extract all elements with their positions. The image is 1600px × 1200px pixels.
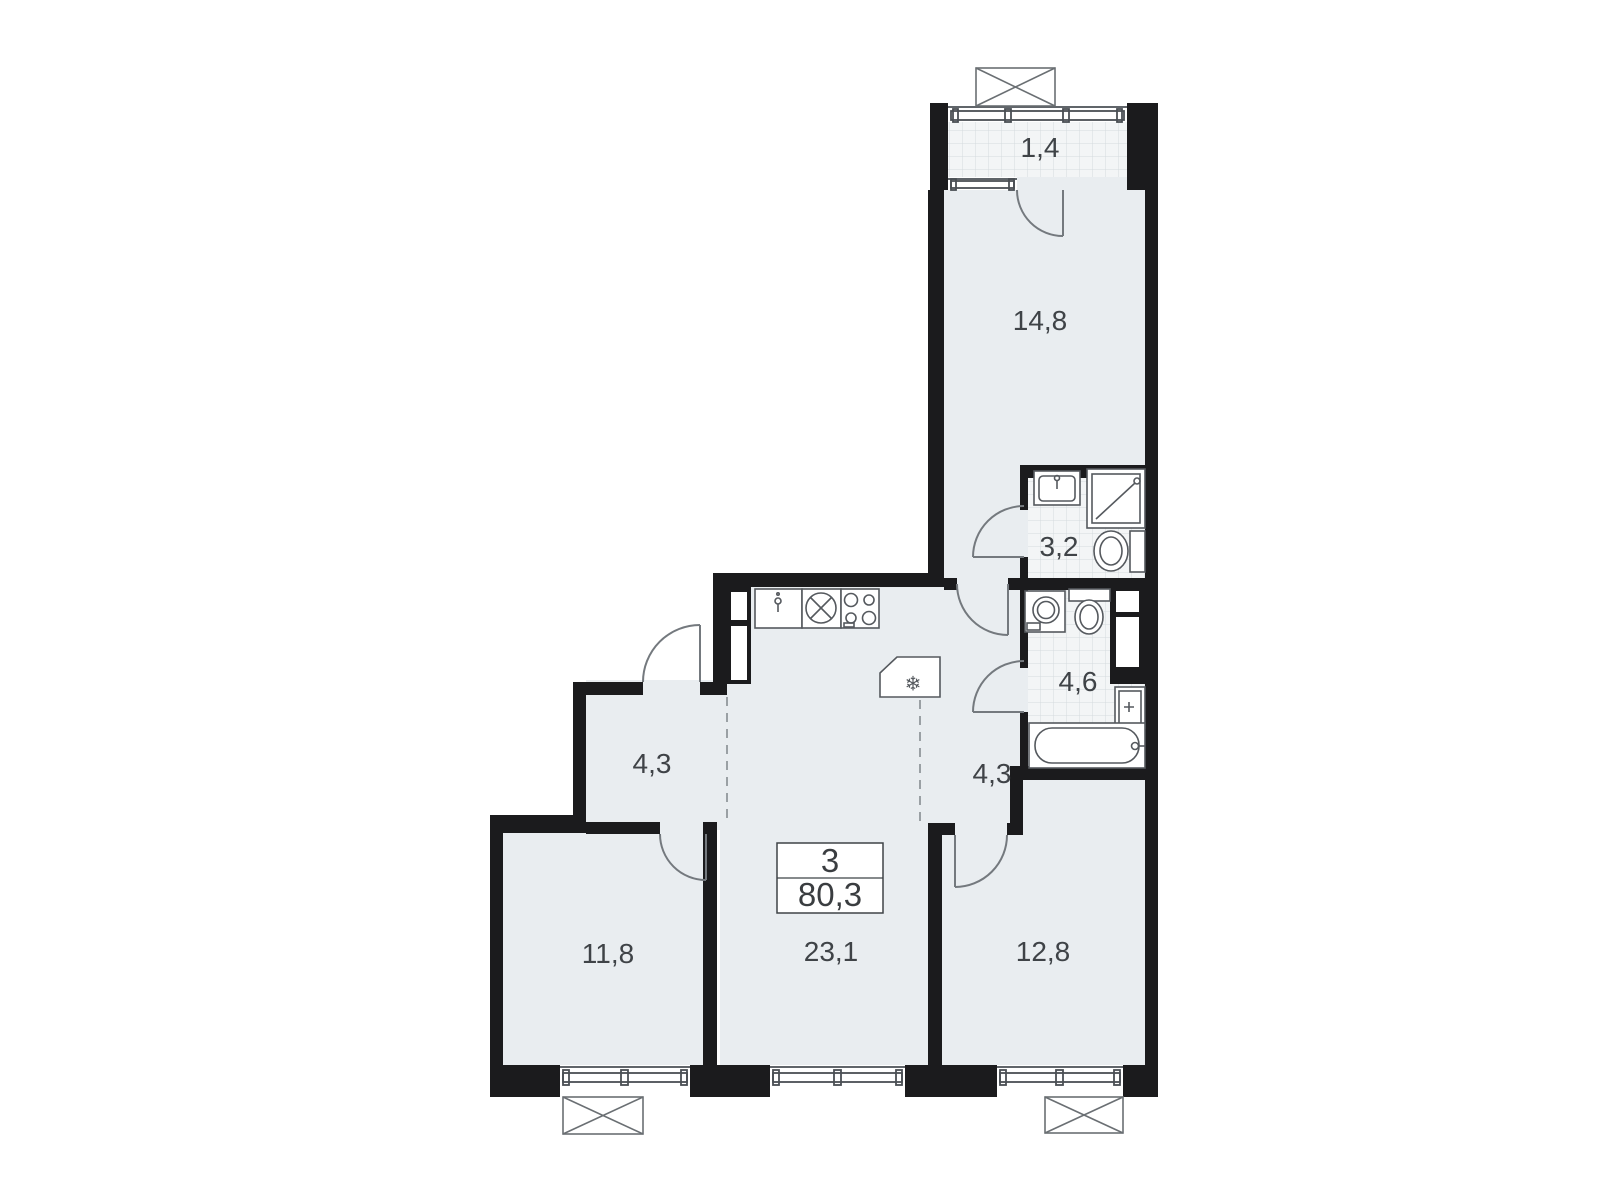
snowflake-icon: ❄ xyxy=(905,673,922,695)
wall xyxy=(905,1065,997,1097)
window-bedroom-right xyxy=(997,1065,1123,1097)
window-kitchen-living xyxy=(770,1065,905,1097)
wall xyxy=(490,815,503,1097)
floor-plan-svg: ❄ 3 80,3 1,4 14,8 3,2 4,6 4,3 4,3 11,8 2… xyxy=(0,0,1600,1200)
wall xyxy=(573,682,643,695)
room-label-balcony: 1,4 xyxy=(1021,132,1060,163)
room-label-kitchen-living: 23,1 xyxy=(804,936,859,967)
wall xyxy=(1010,766,1023,835)
balcony-glazing xyxy=(948,106,1127,122)
room-label-bathroom-shower: 3,2 xyxy=(1040,531,1079,562)
window-bedroom-top xyxy=(948,177,1017,190)
room-label-bathroom-main: 4,6 xyxy=(1059,666,1098,697)
summary-box: 3 80,3 xyxy=(777,842,883,913)
door-entrance xyxy=(643,625,700,682)
wall xyxy=(1123,1065,1158,1097)
basket-marker-bottom-right xyxy=(1045,1097,1123,1133)
room-label-hallway-right: 4,3 xyxy=(973,758,1012,789)
balcony-basket-marker xyxy=(976,68,1055,106)
room-label-hallway-entrance: 4,3 xyxy=(633,748,672,779)
floor-door-gap-bath-main xyxy=(1020,668,1028,712)
kitchen-sink-icon xyxy=(802,589,841,628)
toilet-icon xyxy=(1094,531,1145,572)
shower-icon xyxy=(1087,469,1145,528)
wall xyxy=(713,573,940,587)
wall xyxy=(944,578,957,590)
wall xyxy=(928,823,942,1065)
shaft-inset xyxy=(1116,591,1139,612)
kitchen-counter-icon xyxy=(755,589,802,628)
wall xyxy=(490,815,586,833)
floor-plan-canvas: ❄ 3 80,3 1,4 14,8 3,2 4,6 4,3 4,3 11,8 2… xyxy=(0,0,1600,1200)
wall xyxy=(713,573,727,695)
shaft-inset xyxy=(1116,617,1139,667)
shaft-inset xyxy=(731,626,747,680)
wall xyxy=(690,1065,770,1097)
total-area-value: 80,3 xyxy=(798,876,862,913)
wall xyxy=(928,823,955,835)
wall xyxy=(1145,103,1158,1097)
wall xyxy=(573,682,586,833)
room-label-bedroom-top: 14,8 xyxy=(1013,305,1068,336)
washing-machine-icon xyxy=(1025,591,1065,632)
basket-marker-bottom-left xyxy=(563,1097,643,1134)
rooms-count-value: 3 xyxy=(821,842,839,879)
room-label-bedroom-left: 11,8 xyxy=(582,938,634,969)
floor-door-gap-bath-shower xyxy=(1020,510,1028,557)
stove-icon xyxy=(841,589,879,628)
floor-door-gap-bedroom-left xyxy=(660,820,706,836)
room-label-bedroom-right: 12,8 xyxy=(1016,936,1071,967)
wall xyxy=(930,103,948,190)
wall xyxy=(1020,712,1028,766)
window-bedroom-left xyxy=(560,1065,690,1097)
shaft-inset xyxy=(731,592,747,620)
sink-icon xyxy=(1034,471,1080,505)
wall xyxy=(586,822,660,834)
wall xyxy=(928,190,944,587)
washbasin-icon xyxy=(1115,687,1145,728)
bathtub-icon xyxy=(1029,723,1145,768)
